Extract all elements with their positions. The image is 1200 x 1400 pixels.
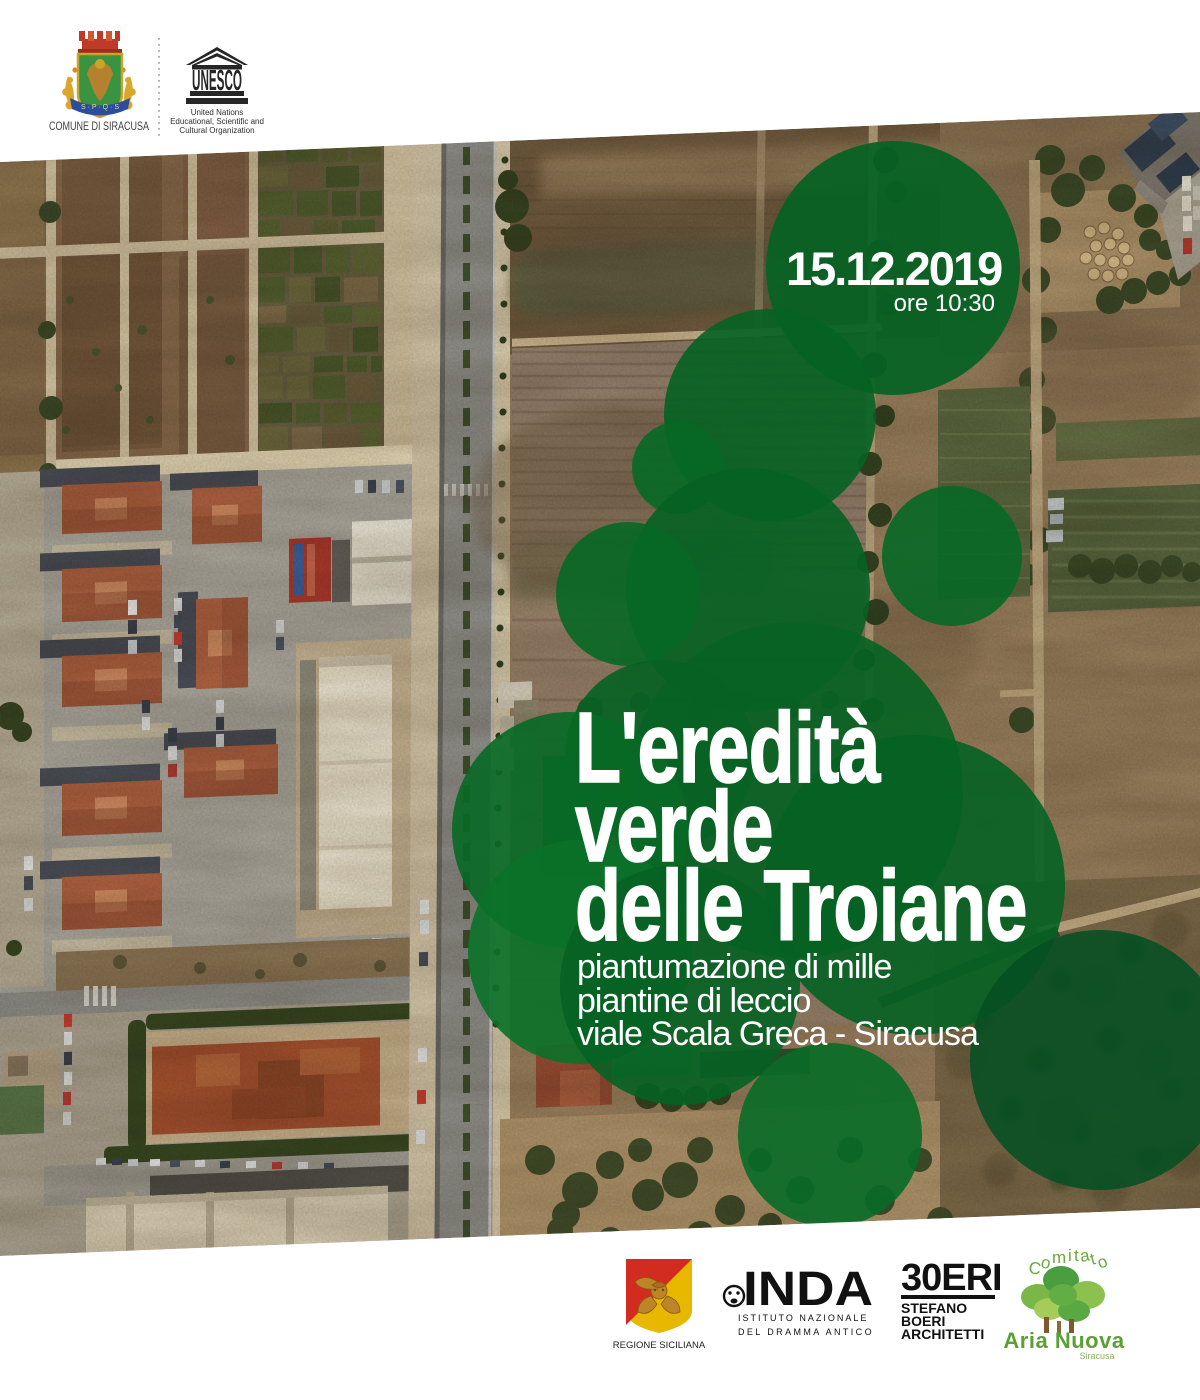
svg-text:REGIONE SICILIANA: REGIONE SICILIANA [613, 1340, 706, 1351]
svg-text:ARCHITETTI: ARCHITETTI [901, 1326, 984, 1342]
svg-text:COMUNE DI SIRACUSA: COMUNE DI SIRACUSA [49, 121, 149, 133]
svg-text:Aria Nuova: Aria Nuova [1003, 1328, 1124, 1353]
svg-text:DEL DRAMMA ANTICO: DEL DRAMMA ANTICO [738, 1327, 874, 1337]
svg-text:INDA: INDA [743, 1263, 873, 1316]
svg-text:S · P · Q · S: S · P · Q · S [81, 104, 119, 111]
svg-text:Siracusa: Siracusa [1079, 1351, 1114, 1361]
svg-text:30ERI: 30ERI [901, 1257, 1002, 1299]
svg-text:o: o [1094, 1252, 1110, 1273]
svg-text:Educational, Scientific and: Educational, Scientific and [170, 117, 264, 126]
svg-text:i: i [1068, 1246, 1072, 1265]
svg-text:m: m [1052, 1248, 1066, 1267]
svg-text:Cultural Organization: Cultural Organization [179, 126, 254, 135]
svg-text:UNESCO: UNESCO [192, 65, 242, 97]
svg-text:United Nations: United Nations [191, 108, 243, 117]
svg-text:ISTITUTO NAZIONALE: ISTITUTO NAZIONALE [738, 1313, 868, 1323]
